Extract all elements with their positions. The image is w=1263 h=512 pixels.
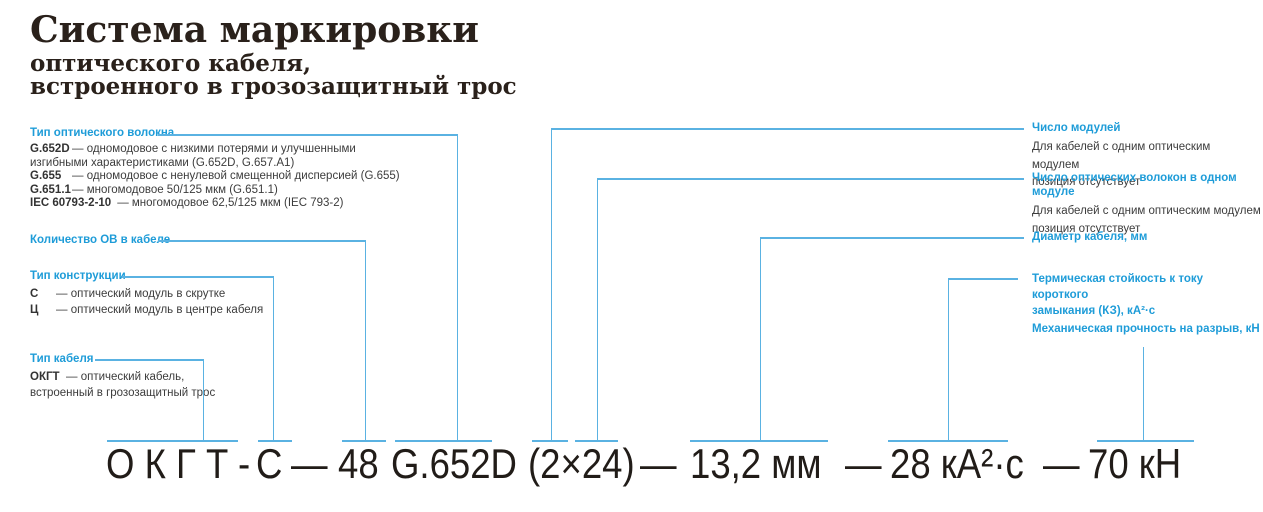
section-thermal-header-line2: замыкания (КЗ), кА²·с — [1032, 303, 1260, 319]
item-code: ОКГТ — [30, 370, 66, 386]
marking-hyphen: - — [238, 443, 250, 485]
marking-string: О К Г Т - С — 48 G.652D (2×24) — 13,2 мм… — [0, 443, 1263, 503]
section-fibers-per-module-header: Число оптических волокон в одном модуле — [1032, 171, 1263, 199]
connector-fiber-type-vline — [457, 134, 459, 442]
connector-thermal-vline — [948, 278, 950, 442]
note-line1: Для кабелей с одним оптическим модулем — [1032, 203, 1263, 221]
connector-fiber-type-hline — [158, 134, 458, 136]
connector-cable-type-hline — [95, 359, 204, 361]
section-fiber-type-header: Тип оптического волокна — [30, 126, 466, 140]
section-diameter-header: Диаметр кабеля, мм — [1032, 230, 1260, 244]
section-mechanical: Механическая прочность на разрыв, кН — [1032, 322, 1260, 336]
item-desc-continued: изгибными характеристиками (G.652D, G.65… — [30, 157, 466, 171]
item-desc: — многомодовое 62,5/125 мкм (IEC 793-2) — [117, 197, 343, 209]
section-mechanical-header: Механическая прочность на разрыв, кН — [1032, 322, 1260, 336]
page-subtitle-line2: встроенного в грозозащитный трос — [30, 75, 517, 98]
section-fibers-per-module: Число оптических волокон в одном модуле … — [1032, 171, 1263, 238]
connector-construction-hline — [122, 276, 274, 278]
marking-thermal: 28 кА²·с — [890, 443, 1024, 485]
marking-diameter: 13,2 мм — [690, 443, 822, 485]
connector-modules-hline — [551, 128, 1024, 130]
list-item: С— оптический модуль в скрутке — [30, 287, 270, 303]
list-item: G.651.1— многомодовое 50/125 мкм (G.651.… — [30, 184, 466, 198]
list-item: IEC 60793-2-10— многомодовое 62,5/125 мк… — [30, 197, 466, 211]
item-desc: — одномодовое с ненулевой смещенной дисп… — [72, 170, 400, 182]
item-code: С — [30, 287, 56, 303]
connector-fibers-per-module-vline — [597, 178, 599, 442]
connector-fiber-count-hline — [158, 240, 366, 242]
connector-modules-vline — [551, 128, 553, 442]
note-line1: Для кабелей с одним оптическим модулем — [1032, 139, 1260, 174]
marking-fiber-type: G.652D — [391, 443, 517, 485]
connector-cable-type-vline — [203, 359, 205, 442]
item-code: G.651.1 — [30, 184, 72, 198]
list-item: Ц— оптический модуль в центре кабеля — [30, 303, 270, 319]
list-item: G.655— одномодовое с ненулевой смещенной… — [30, 170, 466, 184]
section-diameter: Диаметр кабеля, мм — [1032, 230, 1260, 244]
section-thermal: Термическая стойкость к току короткого з… — [1032, 271, 1260, 319]
list-item: ОКГТ— оптический кабель, — [30, 370, 230, 386]
marking-fiber-count: 48 — [338, 443, 379, 485]
item-desc-continued: встроенный в грозозащитный трос — [30, 386, 230, 402]
list-item: G.652D— одномодовое с низкими потерями и… — [30, 143, 466, 157]
marking-dash: — — [291, 443, 328, 485]
marking-construction: С — [256, 443, 282, 485]
page-title: Система маркировки — [30, 8, 517, 52]
title-block: Система маркировки оптического кабеля, в… — [30, 8, 517, 98]
connector-thermal-hline — [948, 278, 1018, 280]
section-fiber-count: Количество ОВ в кабеле — [30, 233, 170, 247]
cable-type-item: ОКГТ— оптический кабель, встроенный в гр… — [30, 370, 230, 401]
connector-diameter-vline — [760, 237, 762, 442]
marking-strength: 70 кН — [1088, 443, 1181, 485]
fiber-type-list: G.652D— одномодовое с низкими потерями и… — [30, 143, 466, 211]
item-desc: — оптический модуль в скрутке — [56, 288, 225, 300]
item-code: Ц — [30, 303, 56, 319]
section-fiber-count-header: Количество ОВ в кабеле — [30, 233, 170, 247]
item-desc: — оптический кабель, — [66, 371, 184, 383]
connector-mechanical-vline — [1143, 347, 1145, 442]
marking-dash: — — [640, 443, 677, 485]
connector-fiber-count-vline — [365, 240, 367, 442]
item-desc: — оптический модуль в центре кабеля — [56, 304, 263, 316]
marking-dash: — — [1043, 443, 1080, 485]
item-code: IEC 60793-2-10 — [30, 197, 111, 211]
section-modules-header: Число модулей — [1032, 121, 1260, 135]
connector-fibers-per-module-hline — [597, 178, 1024, 180]
connector-construction-vline — [273, 276, 275, 442]
item-desc: — одномодовое с низкими потерями и улучш… — [72, 143, 356, 155]
marking-modules: (2×24) — [528, 443, 635, 485]
item-code: G.655 — [30, 170, 72, 184]
marking-dash: — — [845, 443, 882, 485]
connector-diameter-hline — [760, 237, 1024, 239]
section-fiber-type: Тип оптического волокна G.652D— одномодо… — [30, 126, 466, 211]
construction-list: С— оптический модуль в скрутке Ц— оптиче… — [30, 287, 270, 318]
marking-cable-type: О К Г Т — [106, 443, 228, 485]
section-thermal-header-line1: Термическая стойкость к току короткого — [1032, 271, 1260, 303]
page-subtitle-line1: оптического кабеля, — [30, 52, 517, 75]
item-code: G.652D — [30, 143, 72, 157]
item-desc: — многомодовое 50/125 мкм (G.651.1) — [72, 184, 278, 196]
